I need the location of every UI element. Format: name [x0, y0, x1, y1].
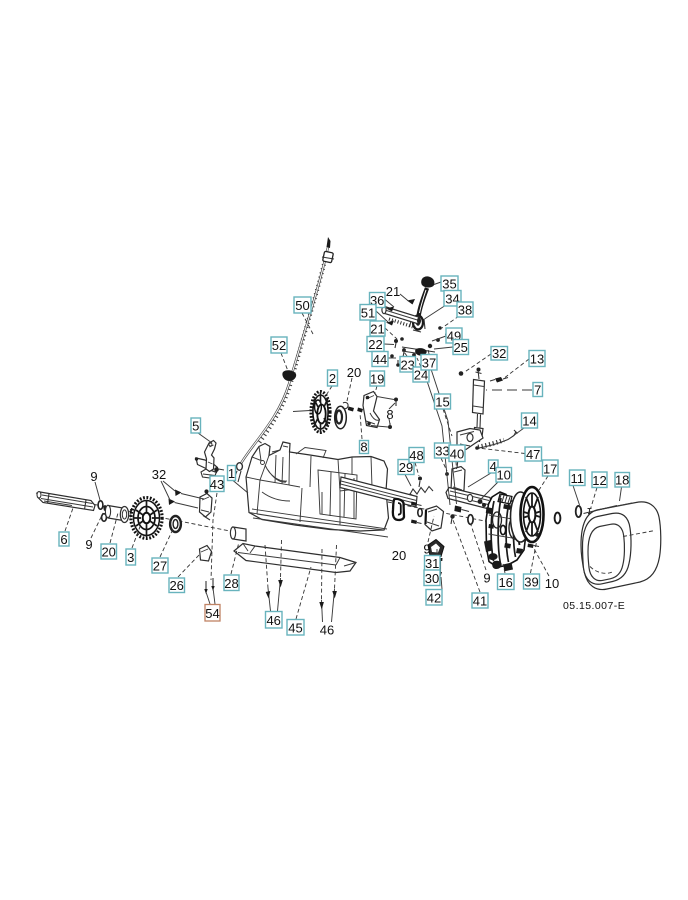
svg-text:10: 10 [545, 576, 559, 591]
svg-text:35: 35 [442, 277, 456, 292]
svg-text:42: 42 [427, 591, 441, 606]
svg-text:43: 43 [210, 477, 224, 492]
svg-text:44: 44 [373, 352, 387, 367]
svg-text:20: 20 [347, 365, 361, 380]
svg-text:52: 52 [272, 338, 286, 353]
svg-text:32: 32 [492, 346, 506, 361]
svg-text:27: 27 [153, 559, 167, 574]
svg-text:13: 13 [530, 352, 544, 367]
svg-text:05.15.007-E: 05.15.007-E [563, 600, 625, 612]
svg-text:2: 2 [329, 371, 336, 386]
svg-text:26: 26 [169, 578, 183, 593]
svg-text:47: 47 [526, 447, 540, 462]
svg-text:19: 19 [370, 372, 384, 387]
svg-text:21: 21 [370, 322, 384, 337]
svg-text:22: 22 [368, 337, 382, 352]
svg-text:14: 14 [522, 414, 536, 429]
svg-text:40: 40 [450, 447, 464, 462]
svg-text:39: 39 [524, 575, 538, 590]
svg-text:7: 7 [534, 383, 541, 398]
svg-text:28: 28 [224, 576, 238, 591]
svg-text:8: 8 [386, 407, 393, 422]
svg-text:30: 30 [425, 571, 439, 586]
svg-text:25: 25 [453, 340, 467, 355]
svg-text:20: 20 [392, 548, 406, 563]
svg-text:48: 48 [409, 448, 423, 463]
svg-text:6: 6 [60, 532, 67, 547]
svg-text:46: 46 [266, 613, 280, 628]
svg-text:3: 3 [127, 550, 134, 565]
svg-text:11: 11 [570, 471, 584, 486]
svg-text:12: 12 [592, 473, 606, 488]
svg-text:16: 16 [498, 575, 512, 590]
svg-text:41: 41 [473, 594, 487, 609]
svg-text:37: 37 [422, 356, 436, 371]
svg-text:9: 9 [90, 469, 97, 484]
svg-text:5: 5 [192, 419, 199, 434]
svg-text:10: 10 [496, 468, 510, 483]
svg-text:38: 38 [458, 303, 472, 318]
svg-text:31: 31 [425, 556, 439, 571]
svg-text:17: 17 [543, 462, 557, 477]
svg-text:33: 33 [435, 444, 449, 459]
svg-text:8: 8 [360, 440, 367, 455]
svg-text:9: 9 [483, 571, 490, 586]
svg-text:21: 21 [386, 284, 400, 299]
svg-text:18: 18 [615, 473, 629, 488]
svg-text:32: 32 [152, 467, 166, 482]
svg-text:9: 9 [85, 537, 92, 552]
svg-text:46: 46 [320, 623, 334, 638]
svg-text:1: 1 [228, 466, 235, 481]
svg-text:54: 54 [205, 606, 219, 621]
svg-text:9: 9 [423, 542, 430, 557]
svg-text:50: 50 [295, 298, 309, 313]
svg-text:51: 51 [361, 306, 375, 321]
svg-text:15: 15 [435, 395, 449, 410]
svg-text:45: 45 [288, 621, 302, 636]
svg-text:20: 20 [101, 545, 115, 560]
